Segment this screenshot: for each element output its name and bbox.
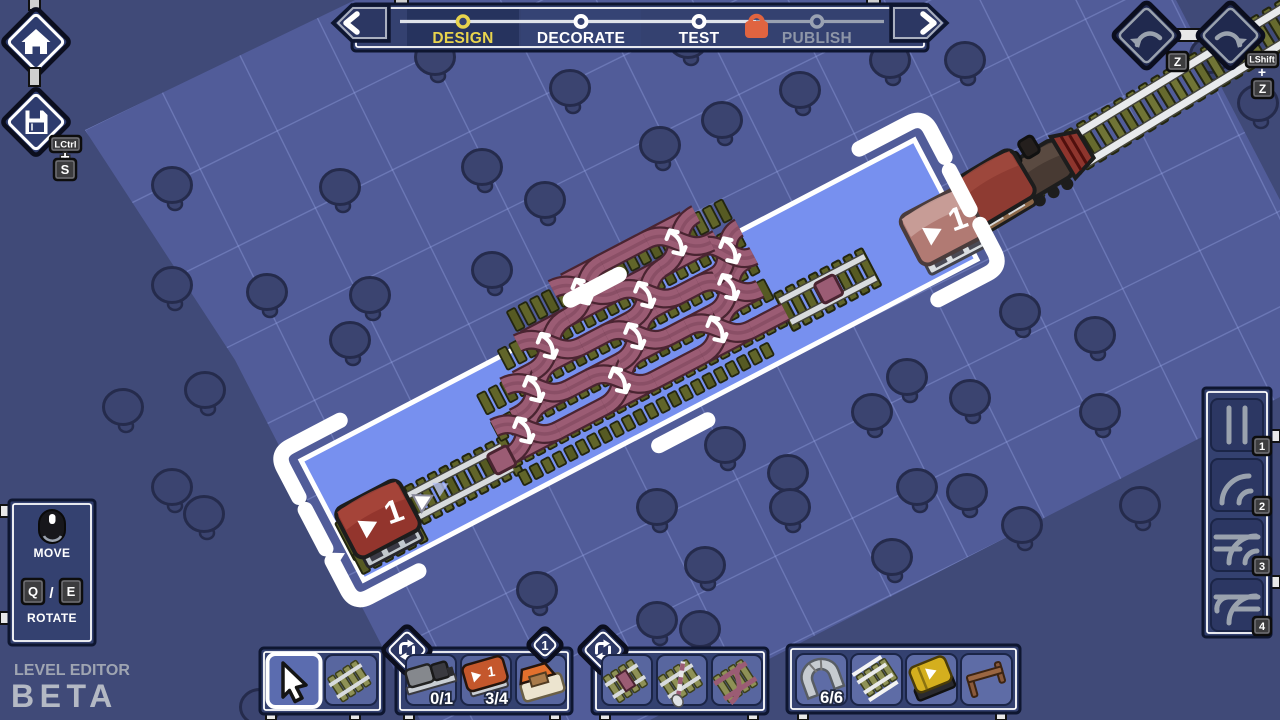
svg-text:2: 2 xyxy=(1259,501,1265,513)
svg-text:3: 3 xyxy=(1259,561,1265,573)
svg-text:Z: Z xyxy=(1174,55,1181,69)
svg-text:S: S xyxy=(61,162,70,177)
svg-text:LEVEL EDITOR: LEVEL EDITOR xyxy=(14,662,130,679)
svg-text:3/4: 3/4 xyxy=(485,690,509,708)
svg-text:Q: Q xyxy=(28,584,38,599)
svg-text:DESIGN: DESIGN xyxy=(432,30,493,47)
svg-text:DECORATE: DECORATE xyxy=(537,30,625,47)
svg-text:E: E xyxy=(67,584,76,599)
svg-text:PUBLISH: PUBLISH xyxy=(782,30,852,47)
svg-text:Z: Z xyxy=(1259,82,1266,96)
svg-text:MOVE: MOVE xyxy=(34,546,71,560)
svg-text:BETA: BETA xyxy=(11,678,118,714)
svg-text:ROTATE: ROTATE xyxy=(27,611,77,625)
svg-text:6/6: 6/6 xyxy=(820,689,843,707)
svg-text:+: + xyxy=(1258,64,1266,80)
svg-text:TEST: TEST xyxy=(679,30,720,47)
svg-text:0/1: 0/1 xyxy=(430,690,453,708)
svg-text:4: 4 xyxy=(1259,621,1266,633)
svg-text:1: 1 xyxy=(541,638,548,653)
svg-text:1: 1 xyxy=(1259,441,1265,453)
